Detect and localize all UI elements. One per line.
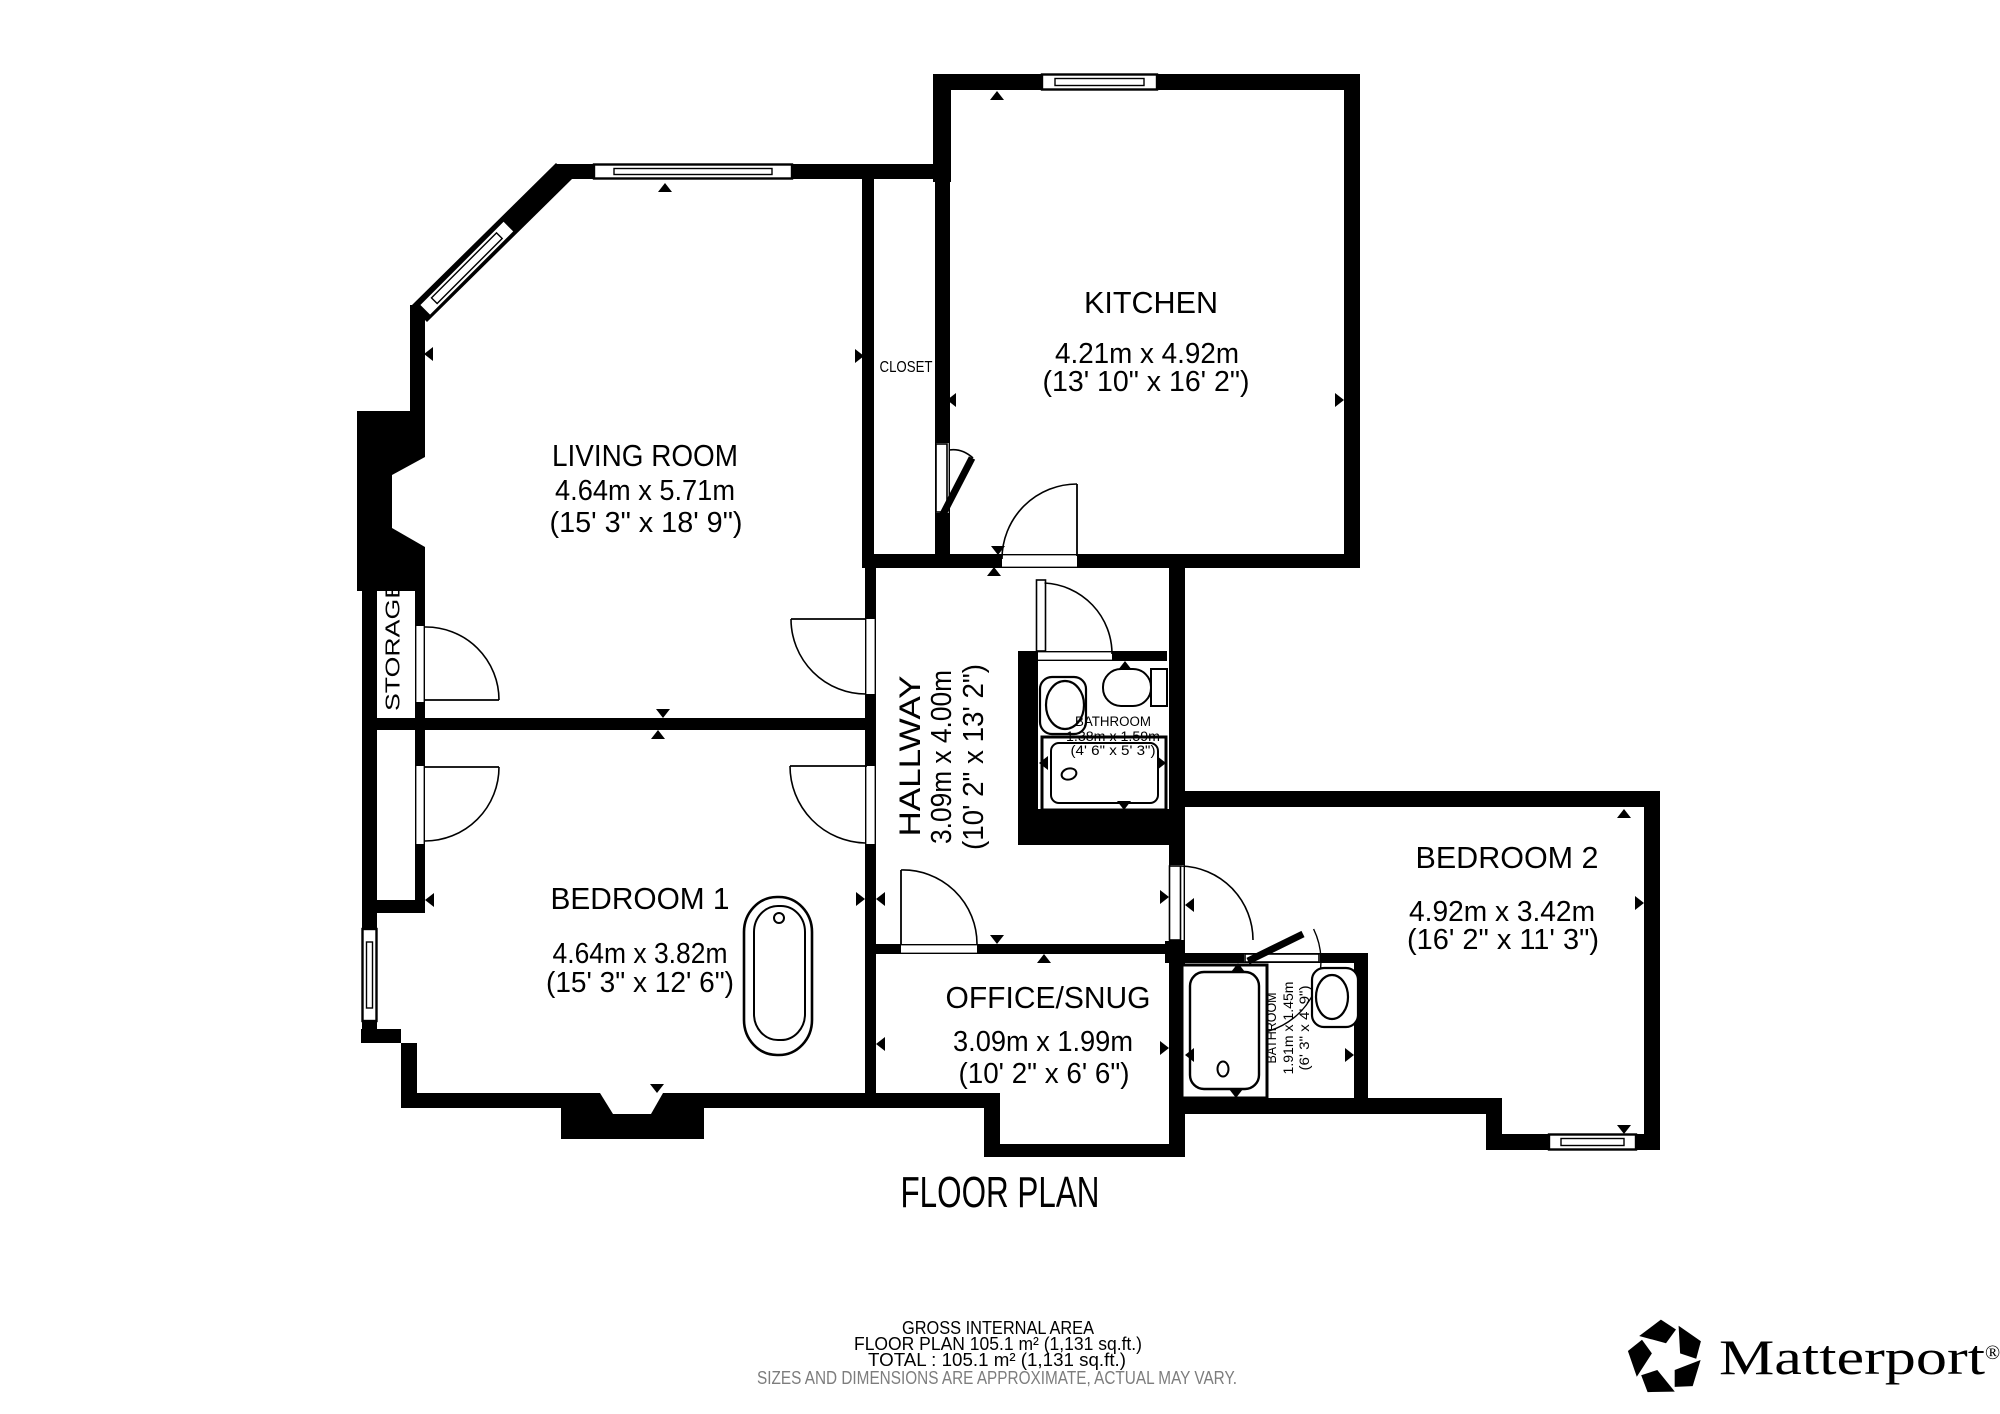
svg-text:LIVING ROOM: LIVING ROOM bbox=[552, 438, 738, 473]
svg-text:(4' 6" x 5' 3"): (4' 6" x 5' 3") bbox=[1071, 743, 1156, 758]
svg-text:1.38m x 1.59m: 1.38m x 1.59m bbox=[1066, 729, 1160, 744]
svg-text:4.64m x 3.82m: 4.64m x 3.82m bbox=[553, 938, 728, 970]
svg-text:3.09m x 4.00m: 3.09m x 4.00m bbox=[926, 670, 958, 844]
svg-text:(10' 2" x 6' 6"): (10' 2" x 6' 6") bbox=[959, 1058, 1130, 1090]
svg-text:CLOSET: CLOSET bbox=[880, 359, 933, 376]
svg-text:FLOOR PLAN: FLOOR PLAN bbox=[901, 1168, 1100, 1217]
svg-text:(15' 3" x 18' 9"): (15' 3" x 18' 9") bbox=[550, 507, 743, 539]
svg-text:BATHROOM: BATHROOM bbox=[1264, 993, 1279, 1064]
svg-text:OFFICE/SNUG: OFFICE/SNUG bbox=[946, 980, 1151, 1015]
svg-text:KITCHEN: KITCHEN bbox=[1084, 285, 1218, 320]
svg-text:SIZES AND DIMENSIONS ARE APPRO: SIZES AND DIMENSIONS ARE APPROXIMATE, AC… bbox=[757, 1367, 1237, 1388]
svg-text:(16' 2" x 11' 3"): (16' 2" x 11' 3") bbox=[1407, 924, 1599, 956]
svg-text:®: ® bbox=[1985, 1342, 2000, 1364]
svg-text:3.09m x 1.99m: 3.09m x 1.99m bbox=[953, 1026, 1133, 1058]
svg-text:(6' 3" x 4' 9"): (6' 3" x 4' 9") bbox=[1297, 986, 1312, 1071]
svg-text:BEDROOM 2: BEDROOM 2 bbox=[1416, 840, 1599, 875]
svg-text:(10' 2" x 13' 2"): (10' 2" x 13' 2") bbox=[958, 664, 990, 850]
svg-text:1.91m x 1.45m: 1.91m x 1.45m bbox=[1281, 982, 1296, 1075]
svg-text:HALLWAY: HALLWAY bbox=[894, 676, 927, 837]
svg-text:(13' 10" x 16' 2"): (13' 10" x 16' 2") bbox=[1043, 366, 1250, 398]
svg-text:(15' 3" x 12' 6"): (15' 3" x 12' 6") bbox=[546, 967, 734, 999]
svg-text:Matterport: Matterport bbox=[1719, 1329, 1985, 1385]
svg-text:BATHROOM: BATHROOM bbox=[1075, 714, 1151, 729]
svg-text:4.64m x 5.71m: 4.64m x 5.71m bbox=[555, 475, 735, 507]
svg-text:STORAGE: STORAGE bbox=[382, 581, 404, 711]
svg-text:BEDROOM 1: BEDROOM 1 bbox=[551, 881, 730, 916]
